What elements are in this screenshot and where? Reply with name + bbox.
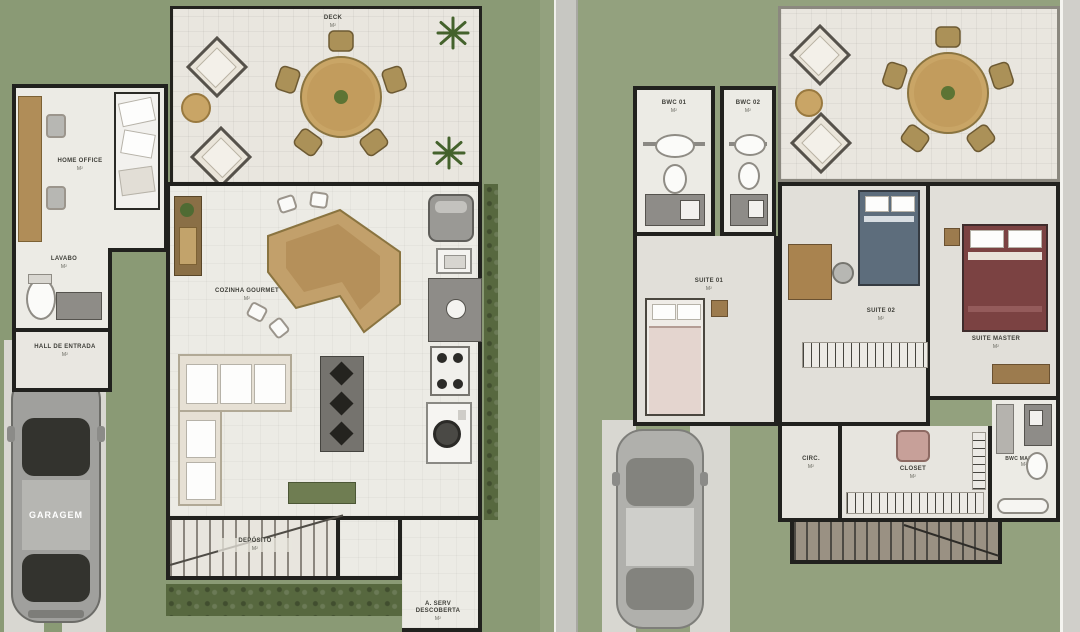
room-label-lavabo: LAVABOm² [26,256,102,270]
room-label-home-office: HOME OFFICEm² [42,158,118,172]
room-living-kitchen: COZINHA GOURMETm² [166,182,482,520]
corridor [340,520,402,580]
counter-sink [446,299,466,319]
desk-chair [832,262,854,284]
tv-cabinet [992,364,1050,384]
lounge-chair-icon [186,36,248,98]
entry-cabinet [174,196,202,276]
sofa-icon [178,354,292,412]
hanger-rack-icon [846,492,984,514]
pillow [118,97,156,128]
room-label-suite01: SUITE 01m² [671,278,747,292]
neighbor-edge [1060,0,1080,632]
bed [962,224,1048,332]
dining-table-icon [271,27,411,167]
toilet-icon [1026,452,1048,480]
plan-ground-floor: GARAGEM DECKm² [0,0,540,632]
sink [436,248,472,274]
stairs-icon [904,524,1000,557]
room-label-deposito: DEPÓSITOm² [218,538,292,552]
bench-plant [288,482,356,504]
bed [645,298,705,416]
plan-upper-floor: BWC 01m² BWC 02m² SUITE 01m² [540,0,1080,632]
room-label-cozinha-gourmet: COZINHA GOURMETm² [204,288,290,302]
island-chair [309,191,329,209]
room-label-bwc01: BWC 01m² [645,100,703,114]
car-icon [612,426,708,632]
nightstand [944,228,960,246]
room-label-suite02: SUITE 02m² [848,308,914,322]
room-suite-master: SUITE MASTERm² [930,182,1060,400]
lounge-chair-icon [789,24,851,86]
stairs [790,522,1002,564]
room-label-suite-master: SUITE MASTERm² [956,336,1036,350]
lounge-chair-icon [790,112,852,174]
toilet-icon [26,278,56,320]
toilet-icon [663,164,687,194]
oven [426,402,472,464]
room-hall: HALL DE ENTRADAm² [12,332,112,392]
plant-icon [431,135,467,171]
room-suite-01: SUITE 01m² [633,236,778,426]
car-icon: GARAGEM [6,366,106,628]
bar-stool [329,361,353,385]
room-label-service: A. SERV DESCOBERTAm² [408,601,468,622]
toilet-icon [738,162,760,190]
room-label-circ: CIRC.m² [788,456,834,470]
bathtub [997,498,1049,514]
room-suite-02: SUITE 02m² [778,182,930,426]
desk [18,96,42,242]
daybed [114,92,160,210]
bar-counter [320,356,364,452]
vanity-counter [996,404,1014,454]
office-chair [46,186,66,210]
pillow [118,166,155,196]
room-home-office: HOME OFFICEm² [12,84,168,252]
kitchen-counter [428,278,482,342]
hedge [484,184,498,520]
deck-area: DECKm² [170,6,482,186]
toilet-tank [28,274,52,284]
upper-deck [778,6,1060,182]
room-circ: CIRC.m² [778,426,842,522]
stove-icon [430,346,470,396]
bed [858,190,920,286]
stairs-deposito: DEPÓSITOm² [166,520,340,580]
room-label-closet: CLOSETm² [880,466,946,480]
room-label-hall: HALL DE ENTRADAm² [30,344,100,358]
hanger-rack-icon [802,342,928,368]
floorplan-image: GARAGEM DECKm² [0,0,1080,632]
shower [645,194,705,226]
ottoman [896,430,930,462]
bar-stool [329,421,353,445]
room-bwc-master: BWC MASTERm² [992,400,1060,522]
sink [734,134,766,156]
room-closet: CLOSETm² [842,426,992,522]
dining-table-icon [878,23,1018,163]
shower [730,194,768,226]
sofa-chaise [178,410,222,506]
hanger-rack-icon [972,432,986,490]
hedge [166,584,402,616]
desk [788,244,832,300]
bar-stool [329,391,353,415]
car-roof-text: GARAGEM [29,510,83,520]
sink [655,134,695,158]
room-lavabo: LAVABOm² [12,248,112,332]
shower [1024,404,1052,446]
room-bwc-01: BWC 01m² [633,86,715,236]
cabinet-top [179,227,197,265]
office-chair [46,114,66,138]
plant-icon [180,203,194,217]
room-bwc-02: BWC 02m² [720,86,776,236]
pouf-icon [181,93,211,123]
pillow [120,129,156,158]
service-area: A. SERV DESCOBERTAm² [402,520,482,632]
plant-icon [435,15,471,51]
lounge-chair-icon [190,126,252,188]
vanity-counter [56,292,102,320]
fridge-icon [428,194,474,242]
sidewalk [554,0,578,632]
room-label-bwc02: BWC 02m² [726,100,770,114]
nightstand [711,300,728,317]
